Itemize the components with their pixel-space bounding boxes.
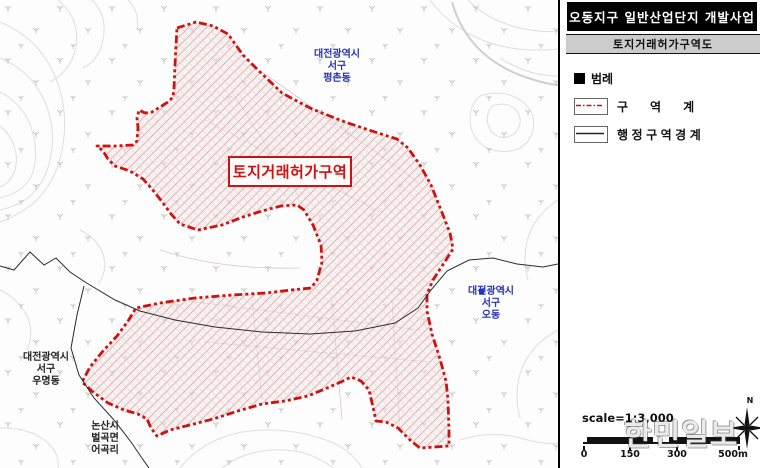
area-label-line: 어곡리 [74, 445, 136, 457]
project-title: 오동지구 일반산업단지 개발사업 [567, 2, 757, 31]
area-label-line: 우명동 [9, 376, 83, 388]
legend-label-admin: 행정구역경계 [617, 126, 704, 143]
info-panel: 오동지구 일반산업단지 개발사업 토지거래허가구역도 범례 구역계 [558, 0, 760, 468]
area-label-line: 대전광역시 [455, 286, 527, 298]
topographic-map: 토지거래허가구역 대전광역시 서구 평촌동 대전광역시 서구 오동 대전광역시 … [0, 0, 558, 468]
watermark: 한민일보 [624, 410, 738, 454]
screenshot-root: 토지거래허가구역 대전광역시 서구 평촌동 대전광역시 서구 오동 대전광역시 … [0, 0, 760, 468]
area-label-line: 서구 [455, 298, 527, 310]
legend-item-admin-boundary: 행정구역경계 [574, 126, 760, 143]
zone-boundary-swatch-icon [574, 98, 608, 115]
legend: 범례 구역계 행정구역경계 [574, 70, 760, 143]
area-label-line: 오동 [455, 310, 527, 322]
north-label: N [747, 396, 754, 405]
area-label-line: 평촌동 [300, 73, 374, 85]
area-label-line: 논산시 [74, 421, 136, 433]
area-label-line: 대전광역시 [9, 352, 83, 364]
map-subtitle: 토지거래허가구역도 [566, 34, 760, 54]
scale-tick-label: 0 [581, 449, 588, 460]
area-label-eogok: 논산시 벌곡면 어곡리 [74, 421, 136, 457]
zone-label-box: 토지거래허가구역 [228, 156, 352, 187]
legend-square-icon [574, 73, 585, 84]
area-label-line: 대전광역시 [300, 49, 374, 61]
area-label-line: 벌곡면 [74, 433, 136, 445]
area-label-odong: 대전광역시 서구 오동 [455, 286, 527, 322]
legend-heading-text: 범례 [591, 70, 613, 87]
map-canvas [0, 0, 558, 468]
area-label-pyeongchon: 대전광역시 서구 평촌동 [300, 49, 374, 85]
area-label-line: 서구 [300, 61, 374, 73]
legend-item-zone-boundary: 구역계 [574, 98, 760, 115]
area-label-line: 서구 [9, 364, 83, 376]
area-label-umyeong: 대전광역시 서구 우명동 [9, 352, 83, 388]
admin-boundary-swatch-icon [574, 126, 608, 143]
legend-heading: 범례 [574, 70, 760, 87]
legend-label-zone: 구역계 [617, 98, 716, 115]
